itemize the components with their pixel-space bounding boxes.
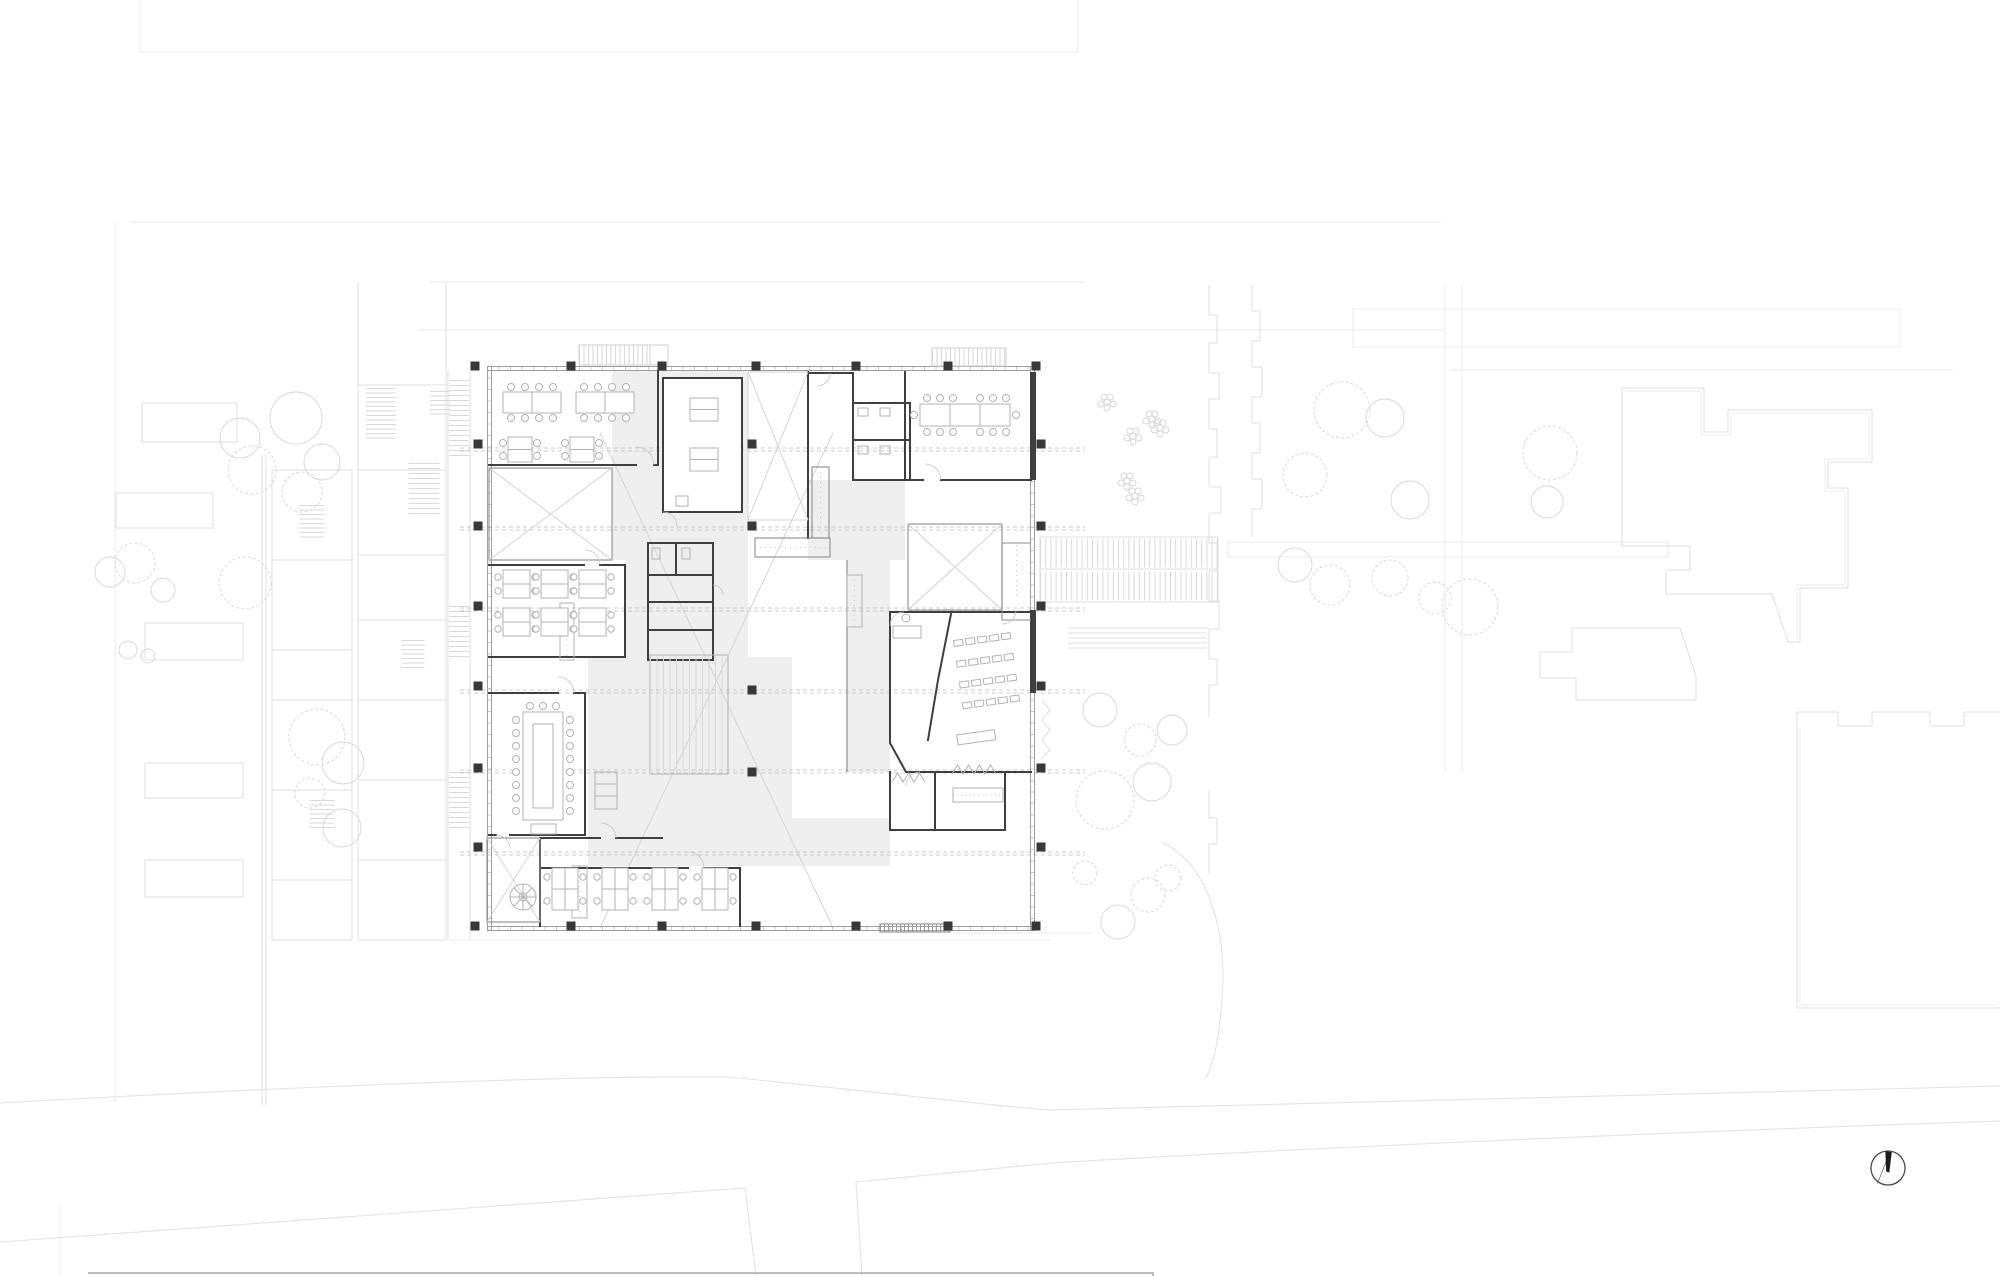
- main-building: [450, 345, 1092, 940]
- context-west-alley: [448, 370, 470, 940]
- road-lower-right: [856, 1121, 2000, 1276]
- meeting-u-table: [513, 703, 574, 835]
- context-west-neighbourhood: [262, 282, 446, 1105]
- street-edges: [0, 1077, 2000, 1276]
- context-east-buildings: [1540, 388, 2000, 1008]
- spiral-stair: [510, 884, 536, 910]
- seminar-room-furniture: [893, 614, 1024, 745]
- trees-east: [1073, 382, 1577, 939]
- context-west-gardens: [116, 403, 243, 897]
- plants-east: [1098, 394, 1169, 505]
- circulation-shading: [588, 371, 905, 866]
- north-arrow-icon: [1871, 1151, 1905, 1186]
- road-lower-left: [0, 1188, 756, 1276]
- road-upper-edge: [0, 1077, 2000, 1110]
- trees-west: [95, 392, 364, 847]
- conference-ne-table: [911, 395, 1020, 436]
- stair-e-walls: [1002, 543, 1031, 620]
- drawing-sheet: [0, 0, 2000, 1276]
- site-plan-svg: [0, 0, 2000, 1276]
- entrance-vestibule: [892, 765, 1003, 802]
- north-entry-stairs: [579, 345, 1006, 366]
- seminar-partition-angled: [928, 614, 951, 740]
- classroom-desks: [495, 570, 614, 636]
- open-office-clusters: [544, 868, 736, 910]
- context-east-plaza: [1040, 285, 1668, 1078]
